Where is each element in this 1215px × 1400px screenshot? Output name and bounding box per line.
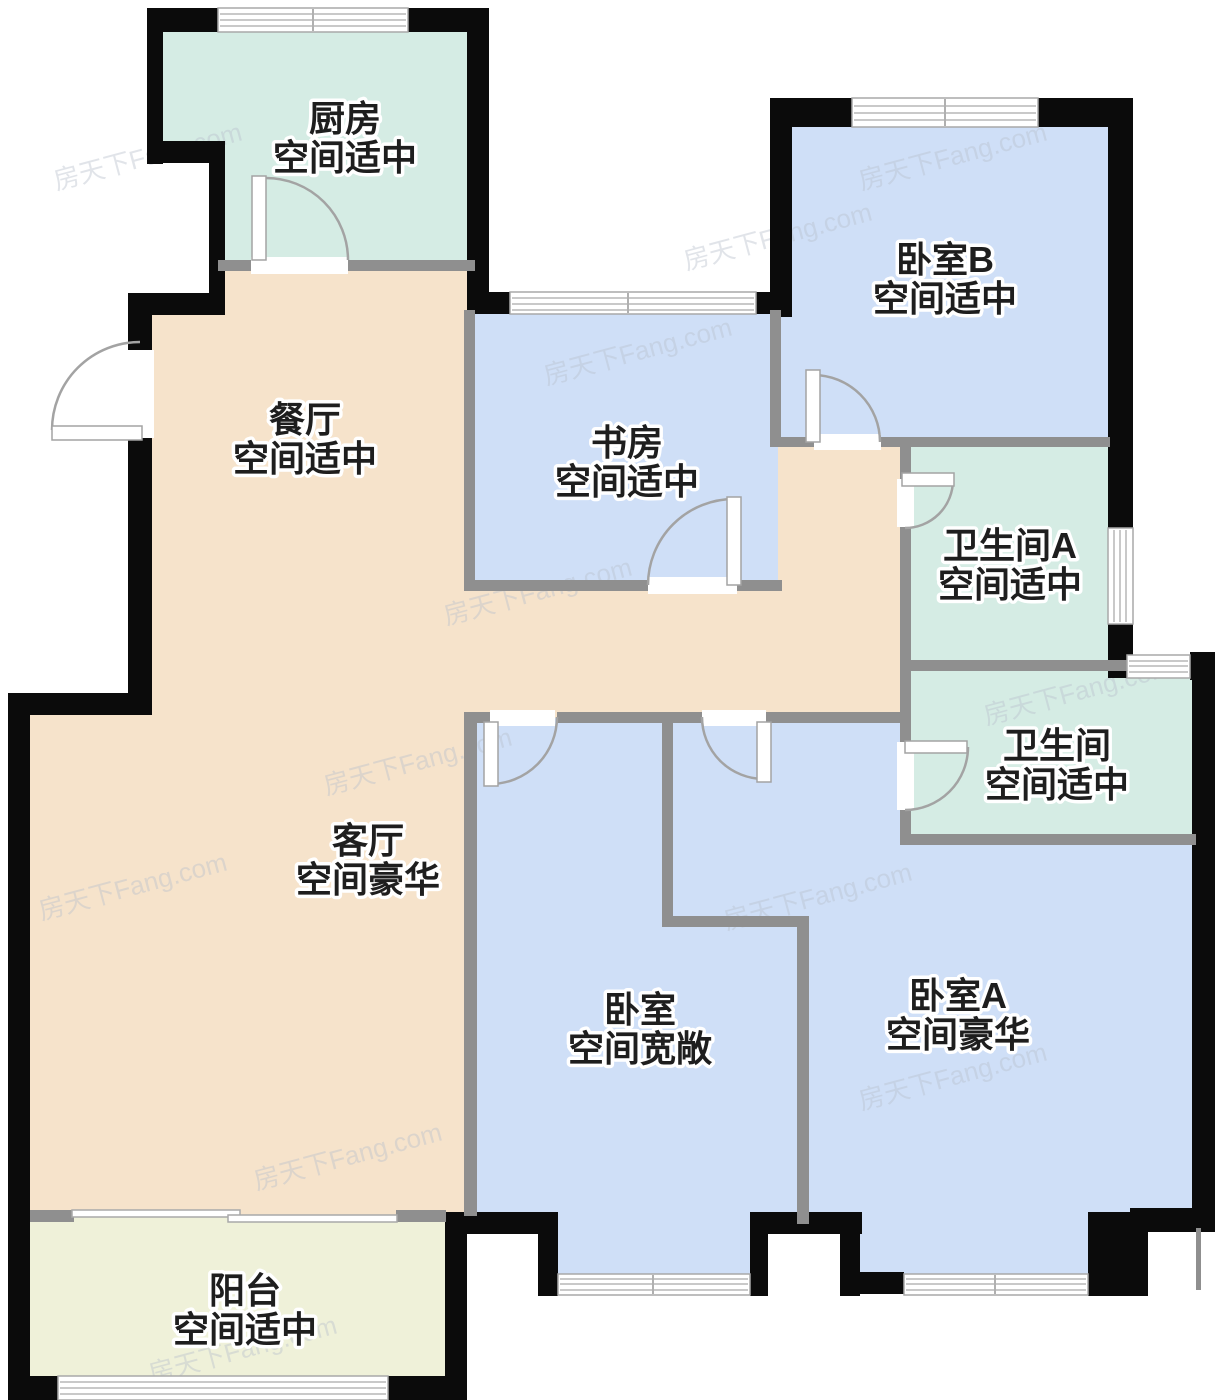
wall bbox=[464, 580, 648, 591]
wall bbox=[770, 98, 792, 317]
wall bbox=[1192, 652, 1215, 1232]
bathroom-label-desc: 空间适中 bbox=[985, 764, 1129, 805]
balcony-window bbox=[58, 1376, 388, 1400]
wall bbox=[770, 98, 852, 127]
study-label-desc: 空间适中 bbox=[555, 461, 699, 502]
wall bbox=[8, 693, 30, 1400]
bedroom-center-label-name: 卧室 bbox=[604, 989, 676, 1030]
wall bbox=[396, 1210, 446, 1222]
wall bbox=[30, 1210, 74, 1222]
dining-label-name: 餐厅 bbox=[269, 399, 341, 440]
wall bbox=[147, 8, 163, 164]
bedroom-center-label-desc: 空间宽敞 bbox=[568, 1028, 713, 1069]
wall bbox=[1088, 1212, 1148, 1296]
wall bbox=[218, 260, 251, 271]
living-label-name: 客厅 bbox=[332, 820, 404, 861]
bedroom-a-label-desc: 空间豪华 bbox=[886, 1014, 1030, 1055]
wall bbox=[881, 437, 1110, 447]
entry-door bbox=[52, 342, 154, 440]
study-label-name: 书房 bbox=[591, 422, 663, 463]
bedroom-a-bay-window bbox=[904, 1274, 1088, 1295]
wall bbox=[662, 716, 673, 923]
floor-plan-svg: 房天下Fang.com 房天下Fang.com 房天下Fang.com 房天下F… bbox=[0, 0, 1215, 1400]
bedroom-b-window bbox=[852, 98, 1038, 127]
wall bbox=[770, 310, 781, 443]
wall bbox=[557, 712, 702, 723]
wall bbox=[900, 660, 1127, 671]
bedroom-b-label-name: 卧室B bbox=[896, 239, 994, 280]
wall bbox=[464, 712, 477, 1216]
kitchen-label-desc: 空间适中 bbox=[273, 137, 417, 178]
wall bbox=[348, 260, 475, 271]
study-window bbox=[510, 292, 756, 314]
wall bbox=[900, 834, 1196, 845]
wall bbox=[209, 141, 225, 315]
kitchen-label-name: 厨房 bbox=[309, 98, 381, 139]
bathroom-a-side-window bbox=[1108, 528, 1133, 624]
living-label-desc: 空间豪华 bbox=[296, 859, 440, 900]
bathroom-top-window bbox=[1127, 655, 1190, 678]
wall bbox=[797, 916, 809, 1224]
kitchen-window bbox=[218, 8, 408, 32]
wall bbox=[840, 1272, 904, 1294]
wall bbox=[662, 916, 808, 927]
bathroom-a-label-desc: 空间适中 bbox=[938, 564, 1082, 605]
bathroom-a-label-name: 卫生间A bbox=[943, 525, 1077, 566]
balcony-label-desc: 空间适中 bbox=[173, 1309, 317, 1350]
balcony-label-name: 阳台 bbox=[209, 1270, 281, 1311]
wall bbox=[900, 527, 911, 742]
dining-label-desc: 空间适中 bbox=[233, 438, 377, 479]
bedroom-b-label-desc: 空间适中 bbox=[873, 278, 1017, 319]
floor-plan-page: 房天下Fang.com 房天下Fang.com 房天下Fang.com 房天下F… bbox=[0, 0, 1215, 1400]
wall bbox=[128, 438, 152, 697]
wall bbox=[464, 310, 475, 591]
wall bbox=[1196, 1228, 1201, 1290]
wall bbox=[538, 1212, 558, 1296]
wall bbox=[737, 580, 782, 591]
wall bbox=[8, 1376, 58, 1400]
bedroom-center-bay-window bbox=[558, 1274, 750, 1295]
bathroom-label-name: 卫生间 bbox=[1003, 725, 1111, 766]
bedroom-a-label-name: 卧室A bbox=[909, 975, 1007, 1016]
wall bbox=[766, 712, 906, 723]
wall bbox=[1108, 98, 1133, 528]
wall bbox=[445, 1212, 467, 1400]
